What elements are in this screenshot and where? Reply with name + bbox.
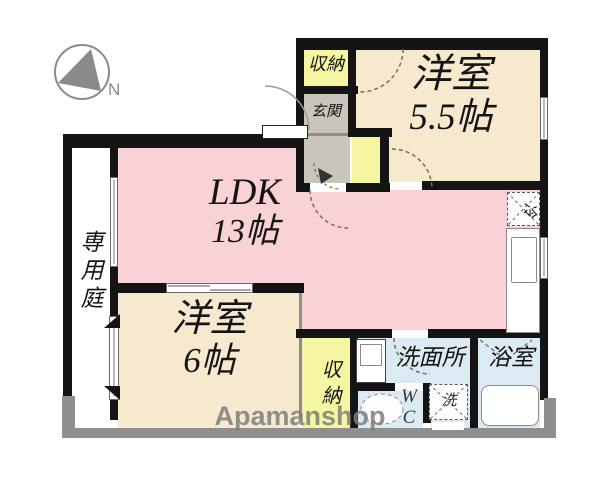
label-bedroom-6: 洋室 6帖: [122, 298, 297, 380]
ldk-size: 13帖: [155, 213, 335, 251]
ldk-name: LDK: [155, 172, 335, 213]
wall-segment: [422, 181, 548, 190]
washbasin-bowl: [360, 344, 382, 366]
window-ldk-west: [110, 177, 118, 267]
label-fridge: 冷: [511, 195, 537, 225]
label-bathroom: 浴室: [481, 345, 541, 371]
wall-segment: [63, 134, 72, 398]
wall-segment: [540, 38, 548, 400]
label-entrance: 玄関: [302, 104, 350, 121]
shoe-closet-area: [352, 137, 380, 183]
wall-segment: [296, 38, 548, 50]
sliding-door-ldk-bedroom6: [166, 283, 253, 293]
wc-line1: W: [396, 386, 422, 407]
kitchen-sink: [511, 237, 537, 283]
wall-segment: [296, 329, 392, 338]
wall-segment: [352, 383, 395, 391]
bedroom55-name: 洋室: [365, 52, 537, 97]
door-opening-bedroom55: [390, 182, 422, 190]
wall-segment: [253, 283, 304, 293]
exterior-wall-gray: [544, 398, 556, 438]
north-label: N: [108, 80, 120, 99]
label-closet-top: 収納: [302, 54, 350, 74]
entrance-step-line: [304, 133, 348, 136]
label-private-garden: 専用庭: [72, 222, 102, 322]
floor-plan: N LDK 13帖 洋室 5.5帖 洋室 6帖 専用庭 収納 玄関 収納 洗面所…: [0, 0, 600, 480]
front-door-leaf: [262, 125, 308, 139]
bedroom6-size: 6帖: [122, 341, 297, 380]
window-bottom-gap: [432, 422, 464, 430]
wall-segment: [110, 283, 166, 293]
wc-line2: C: [396, 407, 422, 428]
wall-segment: [348, 38, 356, 137]
label-ldk: LDK 13帖: [155, 172, 335, 252]
compass-icon: [55, 45, 109, 99]
door-opening-washroom: [392, 330, 428, 338]
wall-segment: [346, 183, 390, 192]
label-wc: W C: [396, 386, 422, 429]
bedroom6-name: 洋室: [122, 298, 297, 341]
label-bedroom-55: 洋室 5.5帖: [365, 52, 537, 138]
watermark: Apamanshop: [205, 401, 395, 432]
label-washer: 洗: [434, 393, 464, 410]
bathtub: [481, 385, 539, 426]
window-bedroom6-west: [109, 316, 119, 400]
bedroom55-size: 5.5帖: [365, 97, 537, 138]
window-bedroom55-east: [540, 97, 548, 140]
window-kitchen-east: [540, 237, 548, 279]
label-washroom: 洗面所: [386, 345, 474, 371]
